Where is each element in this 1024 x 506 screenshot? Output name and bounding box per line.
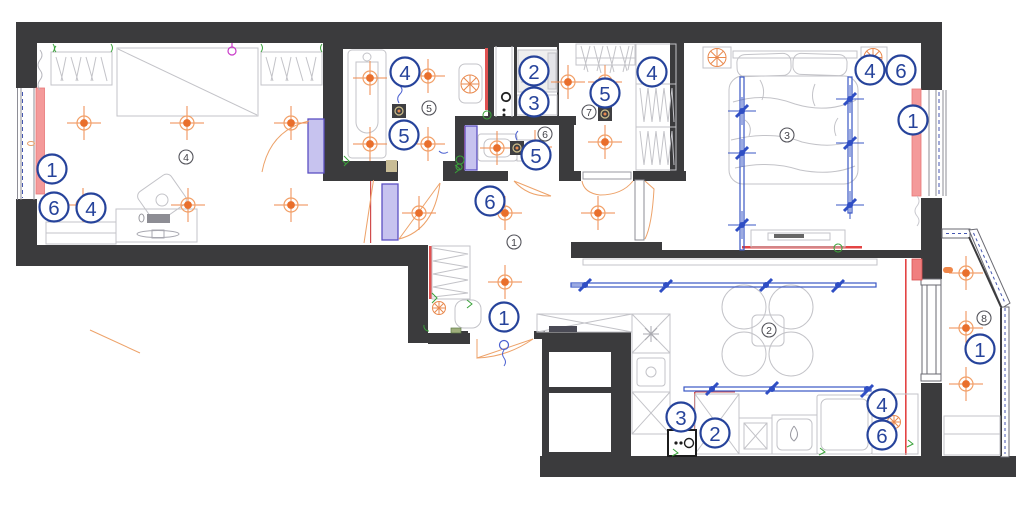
- svg-text:6: 6: [48, 197, 59, 220]
- svg-text:6: 6: [876, 425, 887, 448]
- svg-text:5: 5: [426, 103, 432, 115]
- svg-text:4: 4: [85, 198, 96, 221]
- svg-text:4: 4: [183, 152, 189, 164]
- svg-text:5: 5: [599, 83, 610, 106]
- svg-text:4: 4: [876, 394, 887, 417]
- svg-text:2: 2: [528, 61, 539, 84]
- svg-text:1: 1: [907, 110, 918, 133]
- svg-text:5: 5: [398, 125, 409, 148]
- svg-text:6: 6: [484, 191, 495, 214]
- svg-text:7: 7: [586, 107, 592, 119]
- svg-text:3: 3: [528, 92, 539, 115]
- svg-text:3: 3: [675, 407, 686, 430]
- svg-text:4: 4: [399, 62, 410, 85]
- svg-text:3: 3: [784, 130, 790, 142]
- svg-text:2: 2: [709, 423, 720, 446]
- svg-text:5: 5: [530, 145, 541, 168]
- svg-text:1: 1: [511, 237, 517, 249]
- svg-text:6: 6: [542, 129, 548, 141]
- svg-text:4: 4: [864, 60, 875, 83]
- svg-text:2: 2: [766, 325, 772, 337]
- svg-text:1: 1: [46, 159, 57, 182]
- svg-text:6: 6: [895, 60, 906, 83]
- svg-text:8: 8: [981, 313, 987, 325]
- svg-text:4: 4: [646, 62, 657, 85]
- svg-text:1: 1: [974, 339, 985, 362]
- svg-text:1: 1: [498, 307, 509, 330]
